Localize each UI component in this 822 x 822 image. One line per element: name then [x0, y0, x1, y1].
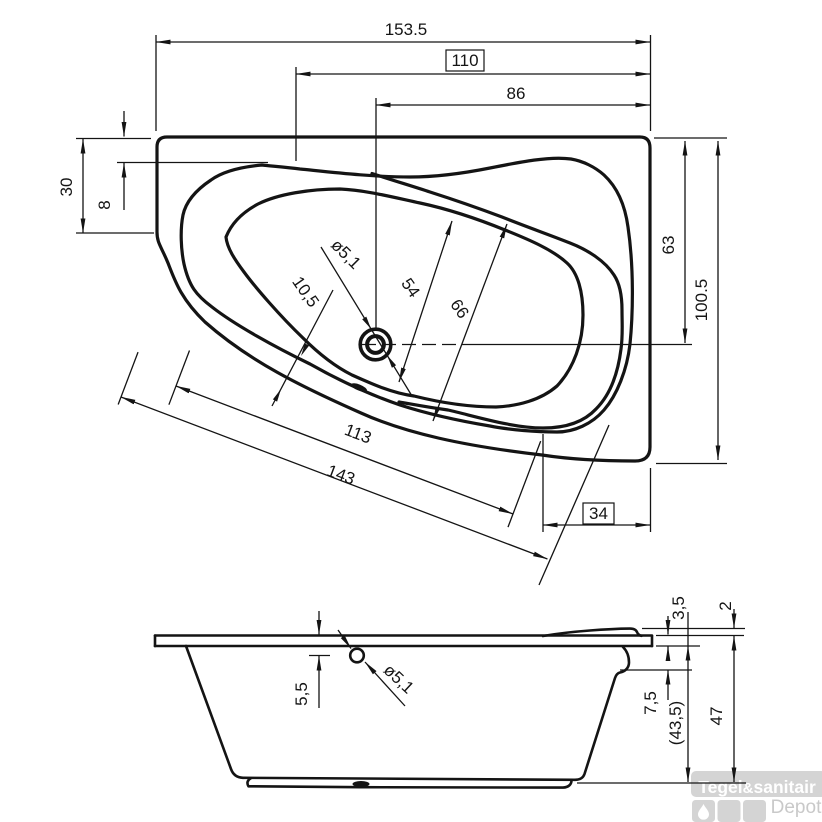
svg-text:5,5: 5,5 [292, 682, 311, 706]
svg-text:Depot: Depot [771, 797, 822, 818]
svg-text:100.5: 100.5 [692, 279, 711, 322]
svg-text:34: 34 [589, 504, 608, 523]
svg-text:86: 86 [507, 84, 526, 103]
svg-text:30: 30 [57, 178, 76, 197]
svg-text:2: 2 [716, 601, 735, 610]
svg-text:110: 110 [451, 51, 478, 70]
svg-text:8: 8 [95, 200, 114, 209]
svg-text:Tegel&sanitair: Tegel&sanitair [698, 777, 816, 797]
svg-text:153.5: 153.5 [385, 20, 428, 39]
svg-text:3,5: 3,5 [669, 596, 688, 620]
svg-text:(43,5): (43,5) [666, 701, 685, 745]
svg-text:7,5: 7,5 [641, 691, 660, 715]
svg-text:63: 63 [659, 236, 678, 255]
svg-text:47: 47 [707, 707, 726, 726]
